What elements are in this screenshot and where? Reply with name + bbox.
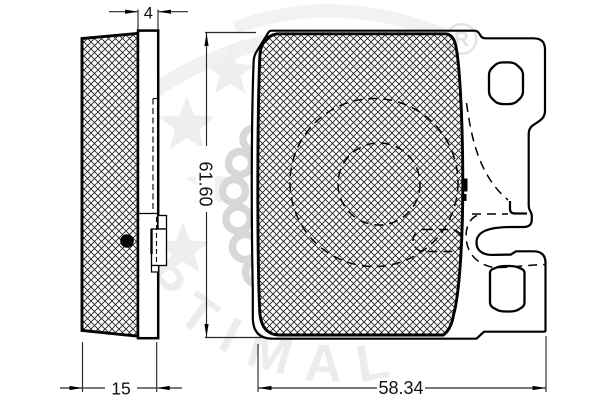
- svg-text:4: 4: [144, 4, 153, 22]
- svg-text:61.60: 61.60: [196, 161, 216, 206]
- svg-text:R: R: [454, 28, 469, 51]
- svg-text:58.34: 58.34: [378, 378, 423, 398]
- svg-text:15: 15: [111, 378, 130, 398]
